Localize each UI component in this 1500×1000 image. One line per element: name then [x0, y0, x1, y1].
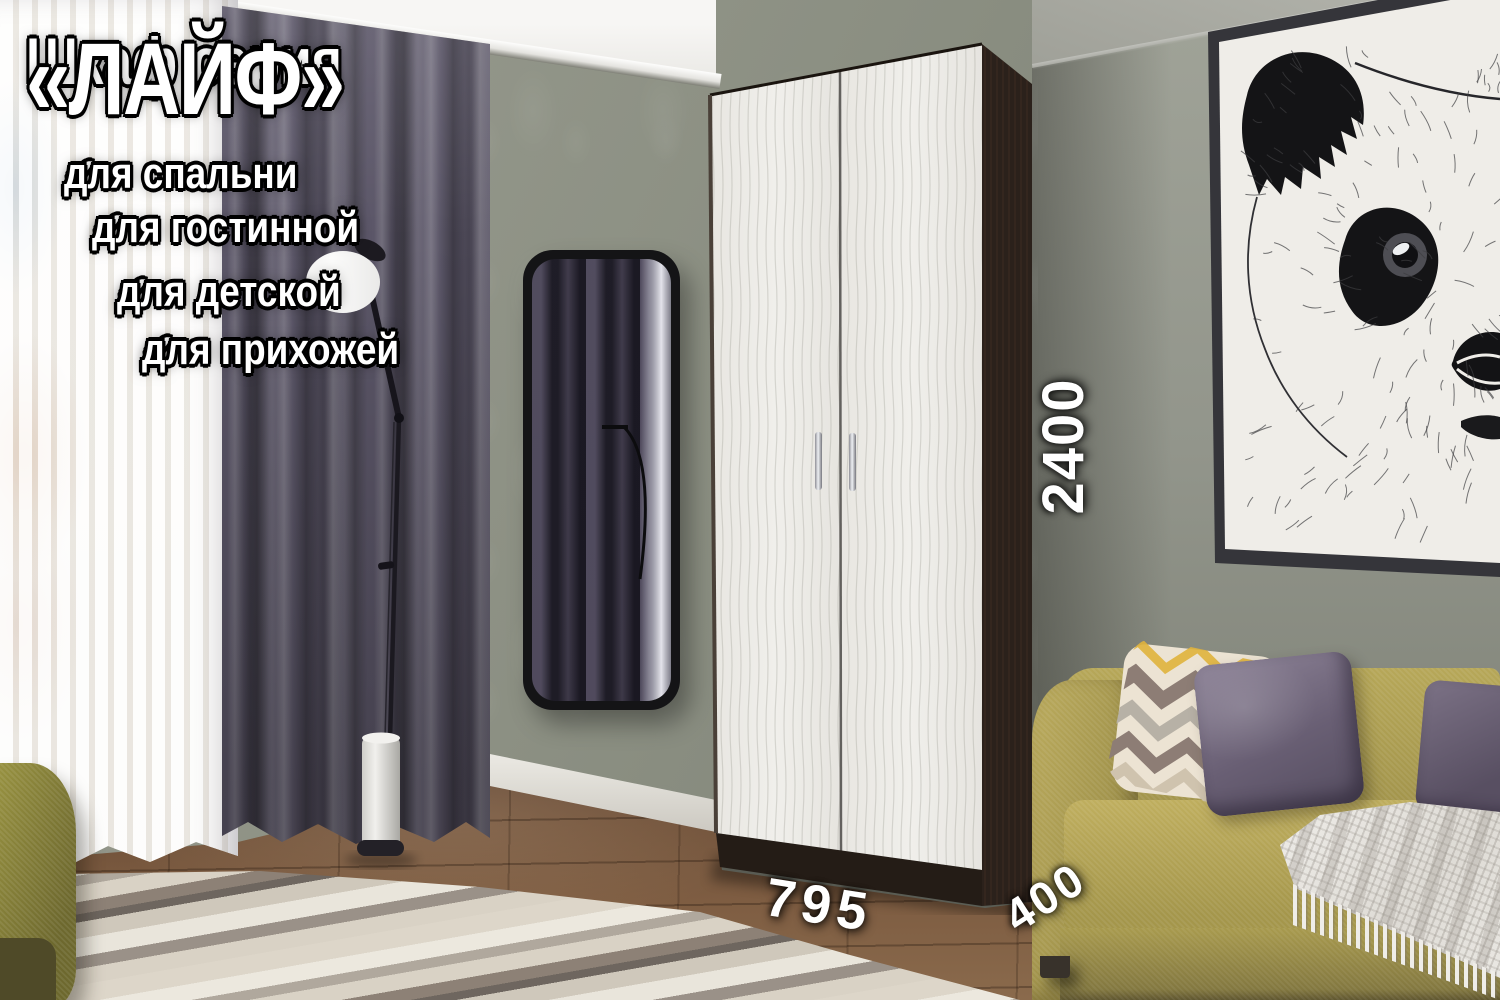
mirror-glass	[532, 259, 671, 701]
framed-picture	[1195, 0, 1500, 625]
mirror-reflection	[532, 259, 671, 701]
lamp-clamp	[378, 561, 395, 570]
wardrobe	[700, 35, 1045, 915]
title-series-name: «ЛАЙФ»	[26, 28, 344, 130]
lamp-base-foot	[357, 840, 404, 856]
wardrobe-door-grain	[710, 44, 982, 870]
wardrobe-side-grain	[982, 44, 1032, 906]
pillow-purple-left	[1192, 650, 1365, 818]
armchair-seat	[0, 938, 56, 1000]
feature-label: для спальни	[64, 152, 297, 196]
lamp-base-top	[362, 733, 400, 744]
pillow-purple-right	[1414, 679, 1500, 821]
wall-mirror	[523, 250, 680, 710]
wardrobe-left-door-handle	[815, 432, 822, 490]
wardrobe-door-gap	[840, 71, 841, 851]
lamp-base-cylinder	[362, 737, 400, 849]
room-scene: Шкаф серия «ЛАЙФ» ✔ для спальни ✔ для го…	[0, 0, 1500, 1000]
wardrobe-right-door-handle	[849, 433, 856, 491]
feature-label: для детской	[117, 270, 341, 314]
feature-label: для прихожей	[142, 328, 399, 372]
lamp-pole	[390, 418, 399, 740]
sofa-leg	[1040, 956, 1070, 978]
dimension-height: 2400	[1035, 377, 1093, 514]
feature-label: для гостинной	[92, 206, 359, 250]
mirror-reflection-arc	[624, 427, 645, 579]
lamp-joint	[394, 413, 404, 423]
